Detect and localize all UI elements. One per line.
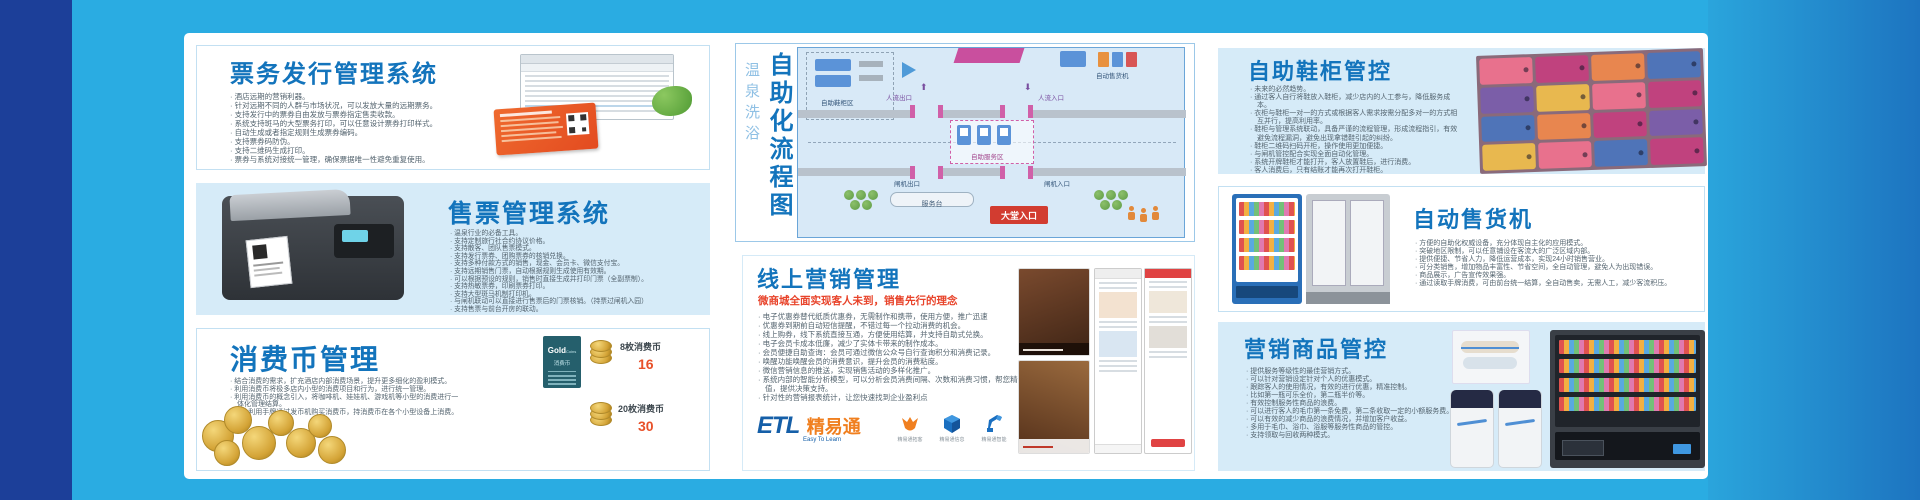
product-logo-caption: 精易通智能 [977, 436, 1011, 443]
bullet-item: · 支持多种付款方式的销售，现金、会员卡、微信支付宝。 [450, 260, 704, 268]
bullet-item: · 提供便捷、节省人力，降低运营成本，实现24小时销售营业。 [1415, 256, 1687, 264]
person-icon [1140, 208, 1147, 222]
plant-icon [1118, 190, 1128, 200]
plant-icon [844, 190, 854, 200]
bullet-item: · 衣柜与鞋柜一对一的方式或根据客人需求按需分配多对一的方式相互并行，提高利用率… [1250, 110, 1462, 126]
vending-label: 自动售货机 [1096, 70, 1129, 80]
bullet-item: · 跟踪客人的使用情况，有效的进行优惠，精准控制。 [1246, 384, 1460, 392]
bullet-item: · 系统开牌鞋柜才能打开，客人放置鞋后，进行消费。 [1250, 159, 1462, 167]
bullet-item: · 支持热敏票券，印刷票券打印。 [450, 283, 704, 291]
plant-icon [1106, 190, 1116, 200]
bullet-item: · 支持二维码生成打印。 [230, 146, 506, 155]
exit-gate-label: 闸机出口 [894, 178, 920, 188]
wall-segment [943, 168, 1003, 176]
plant-icon [856, 190, 866, 200]
bullet-item: · 支持领取与回收两种模式。 [1246, 432, 1460, 440]
bullet-item: · 通过客人自行将鞋放入鞋柜，减少店内的人工参与，降低服务成本。 [1250, 94, 1462, 110]
spa-photo-2 [1018, 360, 1090, 454]
etl-logo: ETL 精易通 Easy To Learn [757, 412, 877, 452]
wall-segment [798, 110, 913, 118]
arrow-up-icon: ⬆ [920, 82, 928, 93]
vending-machine-title: 自动售货机 [1413, 202, 1533, 234]
bullet-item: · 支持票券码防伪。 [230, 137, 506, 146]
bullet-item: · 可以针对营销设定针对个人的优惠模式。 [1246, 376, 1460, 384]
bullet-item: · 可以有效的减少商品的浪费情况，并增加客户收益。 [1246, 416, 1460, 424]
bullet-item: · 支持发行中的票券自由发放与票券指定售卖收款。 [230, 110, 506, 119]
shoe-locker-title: 自助鞋柜管控 [1248, 54, 1392, 86]
coin-management-title: 消费币管理 [230, 338, 380, 378]
banner-shape [954, 48, 1025, 63]
gate-post [938, 166, 943, 179]
service-desk-label: 服务台 [922, 201, 943, 208]
bullet-item: · 支持散客、团队售票模式。 [450, 245, 704, 253]
card-brand-sub: Coins [566, 349, 576, 354]
vending-machine-image-1 [1232, 194, 1302, 304]
bullet-item: · 鞋柜二维码扫码开柜，操作使用更加便捷。 [1250, 143, 1462, 151]
bullet-item: · 支持远期销售门票，自动根据规则生成使用有效期。 [450, 268, 704, 276]
plant-icon [1112, 200, 1122, 210]
flow-title-vertical: 自助化流程图 [761, 52, 796, 220]
bullet-item: · 方便的自助化权威设备，充分体现自主化的应用模式。 [1415, 240, 1687, 248]
product-logo-caption: 精易通拓客 [893, 436, 927, 443]
plant-icon [1094, 190, 1104, 200]
bullet-item: · 针对远期不同的人群与市场状况，可以发放大量的远期票务。 [230, 101, 506, 110]
bullet-item: · 客人消费后，只有结账才能再次打开鞋柜。 [1250, 167, 1462, 175]
gold-coins-image [198, 386, 348, 468]
label-printer-image [214, 190, 412, 308]
bullet-item: · 票券与系统对接统一管理，确保票据唯一性避免重复使用。 [230, 155, 506, 164]
app-screenshot-1 [1094, 268, 1142, 454]
coin-price-label: 8枚消费币 [620, 340, 661, 353]
service-desk: 服务台 [890, 192, 974, 207]
plant-icon [850, 200, 860, 210]
bullet-item: · 鞋柜与管理系统联动，具备严谨的流程管理，形成流程指引，有效避免流程漏洞，避免… [1250, 126, 1462, 142]
direction-arrow-icon [902, 62, 916, 78]
bullet-item: · 支持售票与前台开房的联动。 [450, 306, 704, 314]
bullet-item: · 商品展示，广告宣传效果强。 [1415, 272, 1687, 280]
arrow-down-icon: ⬇ [1024, 82, 1032, 93]
elevator-box [1060, 51, 1086, 67]
vending-machine-bullets: · 方便的自助化权威设备，充分体现自主化的应用模式。· 突破地区限制，可以任意铺… [1415, 240, 1687, 288]
gate-post [1028, 166, 1033, 179]
robot-arm-logo-icon [984, 414, 1004, 434]
vending-machine-image-3 [1550, 330, 1705, 468]
spa-photo-1 [1018, 268, 1090, 356]
card-brand: Gold [548, 346, 566, 355]
wall-segment [1033, 168, 1186, 176]
gate-post [910, 105, 915, 118]
goods-control-bullets: · 提供服务等级性的最佳营销方式。· 可以针对营销设定针对个人的优惠模式。· 跟… [1246, 368, 1460, 440]
hall-entrance: 大堂入口 [990, 206, 1048, 224]
cube-logo-icon [942, 414, 962, 434]
plant-icon [868, 190, 878, 200]
online-marketing-subtitle: 微商城全面实现客人未到，销售先行的理念 [758, 293, 958, 308]
wall-segment [943, 110, 1003, 118]
app-screenshot-2 [1144, 268, 1192, 454]
etl-brand-text: 精易通 [807, 417, 861, 437]
gate-post [1000, 105, 1005, 118]
bullet-item: · 结合消费的需求，扩充酒店内部消费场景，提升更多细化的盈利模式。 [230, 378, 460, 386]
fox-logo-icon [900, 414, 920, 434]
bottles-photo [1446, 390, 1544, 468]
flow-out-label: 人流出口 [886, 92, 912, 102]
right-blue-band [1708, 0, 1920, 500]
flow-in-label: 人流入口 [1038, 92, 1064, 102]
left-dark-band [0, 0, 72, 500]
online-marketing-title: 线上营销管理 [757, 262, 901, 294]
self-service-area: 自助服务区 [950, 120, 1034, 164]
product-logo-fox: 精易通拓客 [893, 414, 927, 448]
coin-price-value: 30 [638, 418, 654, 434]
gold-coin-card-image: GoldCoins 消费币 [543, 336, 581, 388]
etl-tagline: Easy To Learn [803, 437, 877, 443]
coin-price-row: 20枚消费币 30 [590, 400, 708, 460]
gate-post [938, 105, 943, 118]
product-logo-caption: 精易通信息 [935, 436, 969, 443]
ticket-card-image [494, 102, 599, 155]
bullet-item: · 通过读取手牌消费，可由前台统一结算，全自动售卖，无需人工，减少客流积压。 [1415, 280, 1687, 288]
bullet-item: · 自动生成或者指定规则生成票券编码。 [230, 128, 506, 137]
bullet-item: · 与闸机联动可以直接进行售票后的门票核销。（持票过闸机入园） [450, 298, 704, 306]
towel-photo [1452, 330, 1530, 384]
bullet-item: · 有效控制服务性商品的浪费。 [1246, 400, 1460, 408]
ticket-sales-title: 售票管理系统 [448, 194, 610, 230]
gate-post [1000, 166, 1005, 179]
bullet-item: · 系统支持斑马的大型票务打印，可以任意设计票券打印样式。 [230, 119, 506, 128]
bullet-item: · 可以进行客人的毛巾第一条免费，第二条收取一定的小额服务费。 [1246, 408, 1460, 416]
person-icon [1128, 206, 1135, 220]
bullet-item: · 与闸机管控配合实现全面自动化管理。 [1250, 151, 1462, 159]
person-icon [1152, 206, 1159, 220]
goods-control-title: 营销商品管控 [1244, 332, 1388, 364]
ticket-sales-bullets: · 温泉行业的必备工具。· 支持定制旅行社合约协议价格。· 支持散客、团队售票模… [450, 230, 704, 314]
floor-plan: 自助鞋柜区 自动售货机 人流出口 ⬆ 人流入口 ⬇ 闸机出口 闸机入口 自助服务… [797, 47, 1185, 238]
wall-segment [798, 168, 913, 176]
card-title: 消费币 [543, 359, 581, 367]
coin-price-row: 8枚消费币 16 [590, 338, 708, 398]
bullet-item: · 多用于毛巾、浴巾、浴服等服务性商品的管控。 [1246, 424, 1460, 432]
self-service-label: 自助服务区 [971, 151, 1004, 161]
product-logo-cube: 精易通信息 [935, 414, 969, 448]
bullet-item: · 酒店远期的营销利器。 [230, 92, 506, 101]
plant-icon [862, 200, 872, 210]
wall-segment [1033, 110, 1186, 118]
etl-logo-text: ETL [757, 412, 799, 439]
bullet-item: · 突破地区限制，可以任意铺设在客流大的广泛区域内部。 [1415, 248, 1687, 256]
coin-price-value: 16 [638, 356, 654, 372]
bullet-item: · 可分类销售，增加物品丰富性、节省空间，全自动管理，避免人为出现错误。 [1415, 264, 1687, 272]
ticket-issuing-title: 票务发行管理系统 [230, 54, 438, 89]
shoe-locker-image [1476, 48, 1707, 174]
bullet-item: · 比如第一瓶可乐全价，第二瓶半价等。 [1246, 392, 1460, 400]
entry-gate-label: 闸机入口 [1044, 178, 1070, 188]
bullet-item: · 未来的必然趋势。 [1250, 86, 1462, 94]
bullet-item: · 温泉行业的必备工具。 [450, 230, 704, 238]
flow-subtitle-vertical: 温泉洗浴 [741, 62, 762, 146]
shoe-locker-bullets: · 未来的必然趋势。· 通过客人自行将鞋放入鞋柜，减少店内的人工参与，降低服务成… [1250, 86, 1462, 175]
qr-code-icon [566, 112, 589, 135]
ticket-issuing-bullets: · 酒店远期的营销利器。· 针对远期不同的人群与市场状况，可以发放大量的远期票务… [230, 92, 506, 164]
bullet-item: · 提供服务等级性的最佳营销方式。 [1246, 368, 1460, 376]
coin-price-label: 20枚消费币 [618, 402, 664, 415]
gate-post [1028, 105, 1033, 118]
locker-area-label: 自助鞋柜区 [821, 97, 854, 107]
hall-entrance-label: 大堂入口 [1001, 211, 1037, 221]
plant-icon [1100, 200, 1110, 210]
product-logo-robot: 精易通智能 [977, 414, 1011, 448]
vending-machine-image-2 [1306, 194, 1390, 304]
